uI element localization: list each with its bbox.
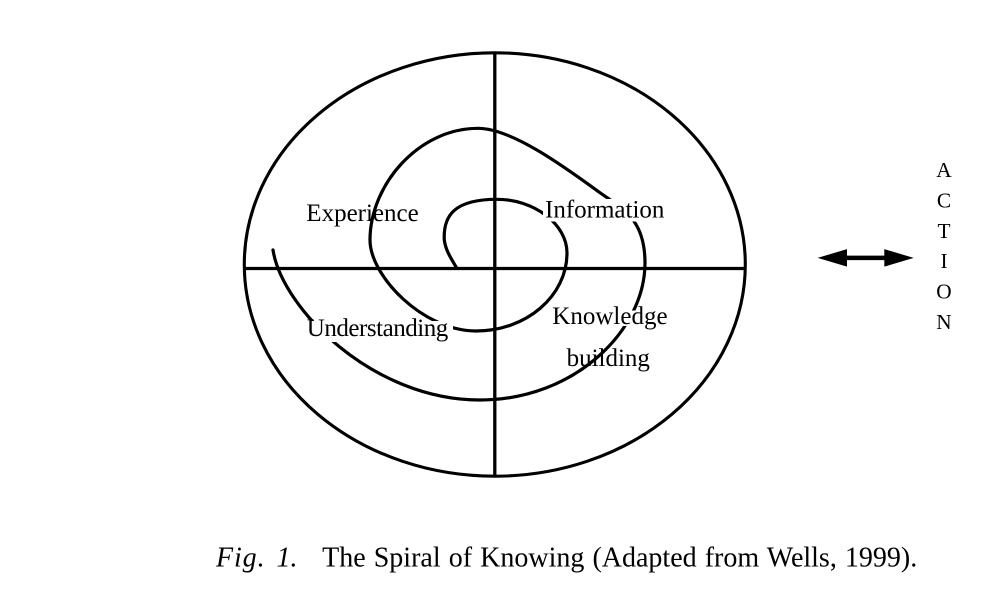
- svg-text:O: O: [936, 280, 951, 304]
- svg-text:I: I: [940, 249, 947, 273]
- svg-text:1.: 1.: [277, 543, 298, 574]
- svg-text:C: C: [937, 188, 951, 212]
- svg-text:T: T: [937, 219, 950, 243]
- svg-text:Knowledge: Knowledge: [552, 303, 667, 330]
- svg-text:A: A: [936, 158, 952, 182]
- svg-text:N: N: [936, 310, 951, 334]
- svg-text:Fig.: Fig.: [215, 543, 265, 574]
- svg-text:The Spiral of Knowing (Adapted: The Spiral of Knowing (Adapted from Well…: [322, 543, 917, 574]
- svg-text:Information: Information: [545, 197, 665, 224]
- svg-text:Understanding: Understanding: [307, 315, 449, 342]
- svg-text:Experience: Experience: [306, 200, 418, 227]
